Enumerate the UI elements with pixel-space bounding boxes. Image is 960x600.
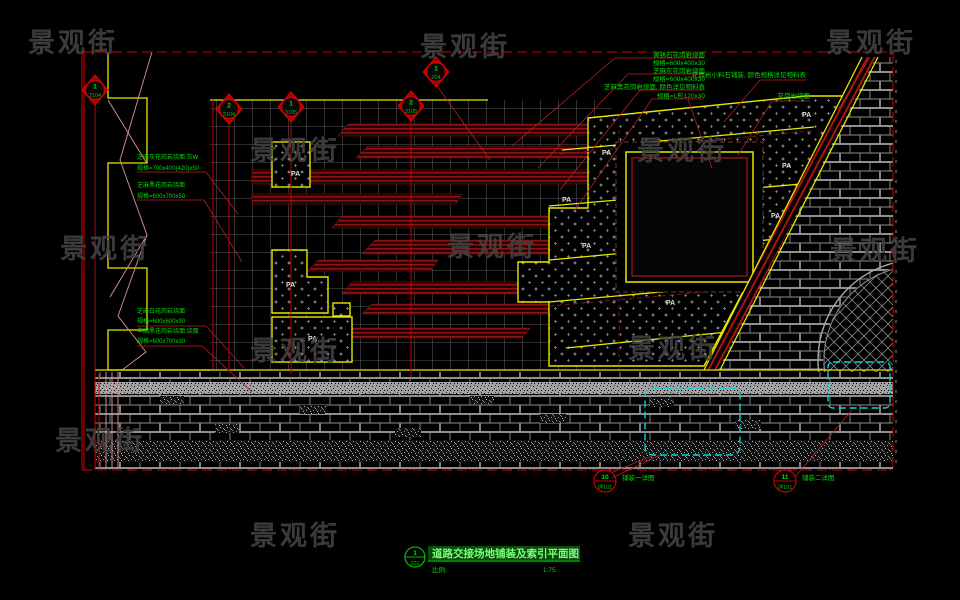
watermark: 景观街: [628, 334, 718, 364]
annotation-text: 花岗岩烧面: [778, 91, 811, 100]
annotation-text: 芝麻黑花岗岩烧面, 颜色详见物料表: [604, 82, 706, 91]
annotation-text: 花岗岩小料石铺装, 颜色规格详见物料表: [692, 70, 807, 79]
pa-label: PA: [602, 150, 611, 157]
annotation-text: 中国黑花岗岩烧面:烧面: [137, 327, 199, 335]
pa-label: PA: [286, 282, 295, 289]
drawing-title: 道路交接场地铺装及索引平面图: [432, 547, 579, 560]
callout-ref: 详101: [598, 483, 613, 491]
pa-label: PA: [782, 163, 791, 170]
marker-num: 2: [409, 100, 413, 107]
watermark: 景观街: [447, 232, 537, 262]
pa-label: PA: [562, 197, 571, 204]
watermark: 景观街: [628, 521, 718, 551]
marker-num: 1: [434, 66, 438, 73]
pa-label: PA: [666, 300, 675, 307]
annotation-text: 规格=600x600x30: [137, 317, 186, 325]
annotation-text: 芝麻灰花岗岩烧面:灰W: [137, 153, 199, 161]
annotation-text: 规格=L形120x30: [657, 91, 706, 100]
pa-label: PA: [291, 171, 300, 178]
annotation-text: 黄锈石花岗岩烧面: [653, 50, 706, 59]
watermark: 景观街: [420, 32, 510, 62]
title-detail-ref: 201: [410, 561, 419, 567]
annotation-text: 规格=600x400x30: [653, 58, 706, 67]
annotation-text: 规格=600x700x30: [137, 337, 186, 345]
pa-label: PA: [582, 243, 591, 250]
title-bar: 1 201 道路交接场地铺装及索引平面图 比例: 1:75: [405, 546, 580, 574]
pa-label: PA: [771, 213, 780, 220]
marker-ref: 3105: [285, 110, 297, 116]
callout-num: 11: [782, 474, 789, 481]
annotations-top-right: 黄锈石花岗岩烧面 规格=600x400x30 芝麻灰花岗岩烧面 规格=600x4…: [604, 50, 811, 100]
marker-num: 1: [289, 101, 293, 108]
callout-label: 铺装二详图: [802, 473, 835, 482]
plan-content: [82, 52, 960, 478]
marker-ref: 2104: [89, 93, 101, 99]
watermark: 景观街: [826, 28, 916, 58]
pa-label: PA: [802, 112, 811, 119]
watermark: 景观街: [830, 236, 920, 266]
annotation-text: 芝麻白花岗岩烧面: [137, 307, 185, 315]
annotation-text: 芝麻黑花岗岩烧面: [137, 181, 185, 189]
annotation-text: 规格=600x700x50: [137, 192, 186, 200]
callout-label: 铺装一详图: [622, 473, 655, 482]
watermark: 景观街: [55, 426, 145, 456]
cad-drawing-canvas: 1 2104 2 2104 1 3105 2 3105 1 204: [0, 0, 960, 600]
watermark: 景观街: [250, 521, 340, 551]
watermark: 景观街: [28, 28, 118, 58]
marker-ref: 3105: [405, 109, 417, 115]
callout-ref: 详101: [778, 483, 793, 491]
watermark: 景观街: [637, 136, 727, 166]
scale-label: 比例:: [432, 565, 447, 574]
marker-ref: 2104: [223, 112, 235, 118]
detail-callout-11: 11 详101 铺装二详图: [774, 470, 835, 492]
marker-num: 2: [227, 103, 231, 110]
scale-value: 1:75: [543, 567, 556, 574]
cad-plan-drawing: 1 2104 2 2104 1 3105 2 3105 1 204: [0, 0, 960, 600]
title-detail-num: 1: [413, 550, 417, 557]
watermark: 景观街: [60, 234, 150, 264]
watermark: 景观街: [250, 336, 340, 366]
marker-num: 1: [93, 84, 97, 91]
watermark: 景观街: [250, 136, 340, 166]
marker-ref: 204: [431, 75, 440, 81]
annotation-text: 规格=700x400(420)x50: [137, 164, 200, 172]
road-pavement: [95, 370, 893, 470]
section-marker: 1 2104: [82, 75, 108, 105]
callout-num: 10: [601, 474, 609, 481]
